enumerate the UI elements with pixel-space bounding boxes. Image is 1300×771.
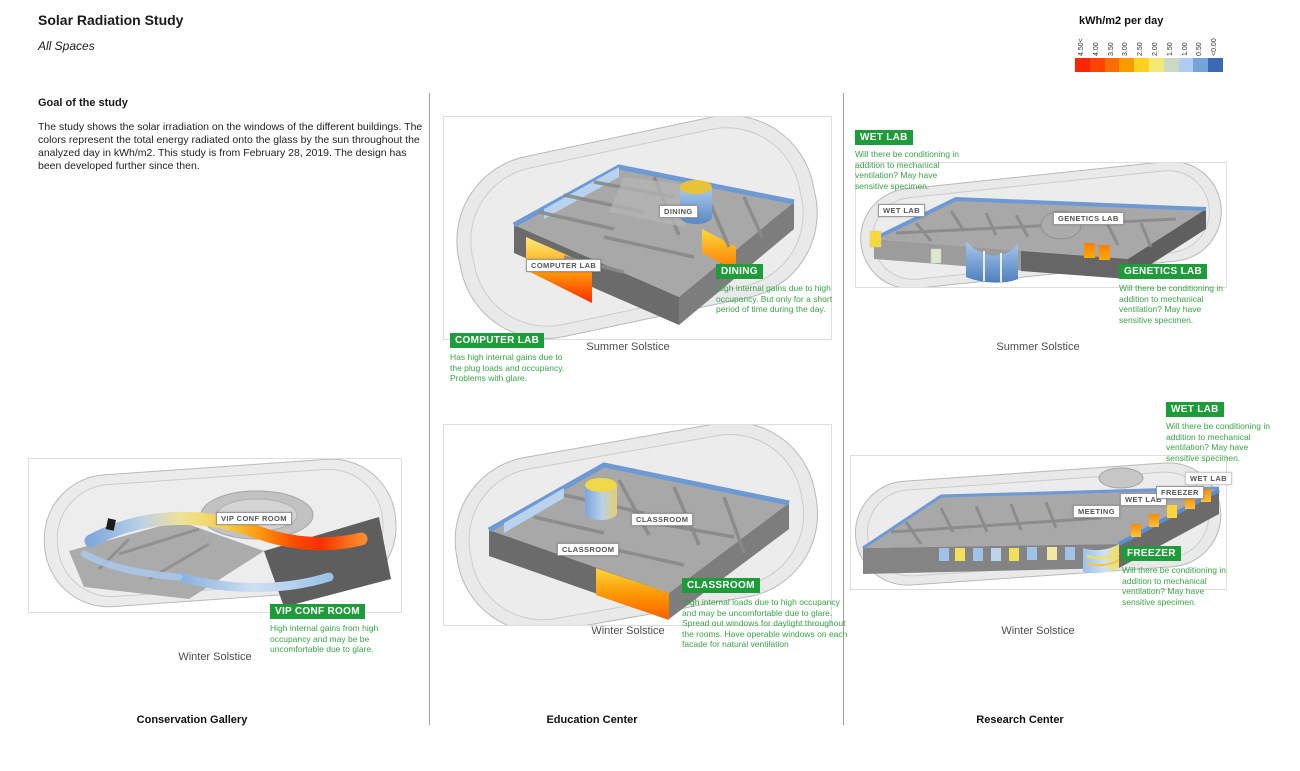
legend-color-cell (1193, 58, 1208, 72)
room-label-computer-lab: COMPUTER LAB (526, 259, 601, 272)
annotation-text-classroom: High internal loads due to high occupanc… (682, 597, 854, 650)
column-title-research-center: Research Center (940, 714, 1100, 726)
courtyard (1099, 468, 1143, 488)
legend-color-cell (1164, 58, 1179, 72)
annotation-wet-lab-winter: WET LAB Will there be conditioning in ad… (1166, 399, 1278, 463)
legend-tick: 1.50 (1164, 25, 1179, 56)
annotation-text-computer-lab: Has high internal gains due to the plug … (450, 352, 574, 384)
caption-research-summer: Summer Solstice (968, 341, 1108, 353)
annotation-text-wet-lab: Will there be conditioning in addition t… (855, 149, 967, 191)
caption-conservation-winter: Winter Solstice (145, 651, 285, 663)
window-orange (1099, 245, 1110, 260)
legend-tick-labels: 4.50< 4.00 3.50 3.00 2.50 2.00 1.50 1.00… (1075, 25, 1223, 56)
window-pale (931, 249, 941, 263)
room-label-meeting: MEETING (1073, 505, 1120, 518)
annotation-tag-classroom: CLASSROOM (682, 578, 760, 593)
caption-research-winter: Winter Solstice (968, 625, 1108, 637)
room-label-freezer: FREEZER (1156, 486, 1204, 499)
goal-heading: Goal of the study (38, 97, 128, 109)
room-label-vip-conf-room: VIP CONF ROOM (216, 512, 292, 525)
legend-tick: 1.00 (1179, 25, 1194, 56)
annotation-genetics-lab: GENETICS LAB Will there be conditioning … (1119, 261, 1233, 325)
legend-tick: 2.50 (1134, 25, 1149, 56)
legend-color-cell (1208, 58, 1223, 72)
legend-color-cell (1179, 58, 1194, 72)
annotation-tag-vip-conf-room: VIP CONF ROOM (270, 604, 365, 619)
room-label-classroom: CLASSROOM (557, 543, 619, 556)
room-label-dining: DINING (659, 205, 698, 218)
column-title-education-center: Education Center (512, 714, 672, 726)
legend-tick: 3.50 (1105, 25, 1120, 56)
page-subtitle: All Spaces (38, 39, 95, 53)
annotation-text-wet-lab: Will there be conditioning in addition t… (1166, 421, 1278, 463)
legend-color-cell (1090, 58, 1105, 72)
legend-colorbar (1075, 58, 1223, 72)
legend-color-cell (1075, 58, 1090, 72)
legend-color-cell (1134, 58, 1149, 72)
annotation-text-freezer: Will there be conditioning in addition t… (1122, 565, 1234, 607)
legend-tick: 0.50 (1193, 25, 1208, 56)
window-yellow (870, 231, 881, 247)
legend-tick: 3.00 (1119, 25, 1134, 56)
goal-body-text: The study shows the solar irradiation on… (38, 121, 431, 173)
legend-tick: 2.00 (1149, 25, 1164, 56)
annotation-tag-freezer: FREEZER (1122, 546, 1181, 561)
annotation-vip-conf-room: VIP CONF ROOM High internal gains from h… (270, 601, 392, 655)
annotation-text-dining: High internal gains due to high occupanc… (716, 283, 842, 315)
solar-radiation-study-page: Solar Radiation Study All Spaces kWh/m2 … (0, 0, 1300, 771)
caption-education-summer: Summer Solstice (558, 341, 698, 353)
figure-conservation-winter: VIP CONF ROOM (28, 458, 402, 613)
room-label-classroom: CLASSROOM (631, 513, 693, 526)
room-label-genetics-lab: GENETICS LAB (1053, 212, 1124, 225)
room-label-wet-lab: WET LAB (1185, 472, 1232, 485)
annotation-classroom: CLASSROOM High internal loads due to hig… (682, 575, 854, 650)
annotation-computer-lab: COMPUTER LAB Has high internal gains due… (450, 330, 574, 384)
annotation-tag-wet-lab: WET LAB (855, 130, 913, 145)
window-orange (1084, 243, 1095, 258)
legend-color-cell (1149, 58, 1164, 72)
column-title-conservation-gallery: Conservation Gallery (112, 714, 272, 726)
annotation-tag-dining: DINING (716, 264, 763, 279)
legend-tick: <0.00 (1208, 25, 1223, 56)
room-label-wet-lab: WET LAB (878, 204, 925, 217)
annotation-dining: DINING High internal gains due to high o… (716, 261, 842, 315)
annotation-wet-lab-summer: WET LAB Will there be conditioning in ad… (855, 127, 967, 191)
annotation-tag-wet-lab: WET LAB (1166, 402, 1224, 417)
annotation-text-vip-conf-room: High internal gains from high occupancy … (270, 623, 392, 655)
annotation-text-genetics-lab: Will there be conditioning in addition t… (1119, 283, 1233, 325)
page-title: Solar Radiation Study (38, 12, 183, 28)
atrium-cylinder (585, 478, 617, 520)
legend-color-cell (1105, 58, 1120, 72)
legend-color-cell (1119, 58, 1134, 72)
annotation-tag-computer-lab: COMPUTER LAB (450, 333, 544, 348)
annotation-freezer: FREEZER Will there be conditioning in ad… (1122, 543, 1234, 607)
legend-tick: 4.00 (1090, 25, 1105, 56)
render-conservation-winter (29, 459, 401, 612)
caption-education-winter: Winter Solstice (558, 625, 698, 637)
annotation-tag-genetics-lab: GENETICS LAB (1119, 264, 1207, 279)
column-divider (429, 93, 430, 725)
legend-tick: 4.50< (1075, 25, 1090, 56)
